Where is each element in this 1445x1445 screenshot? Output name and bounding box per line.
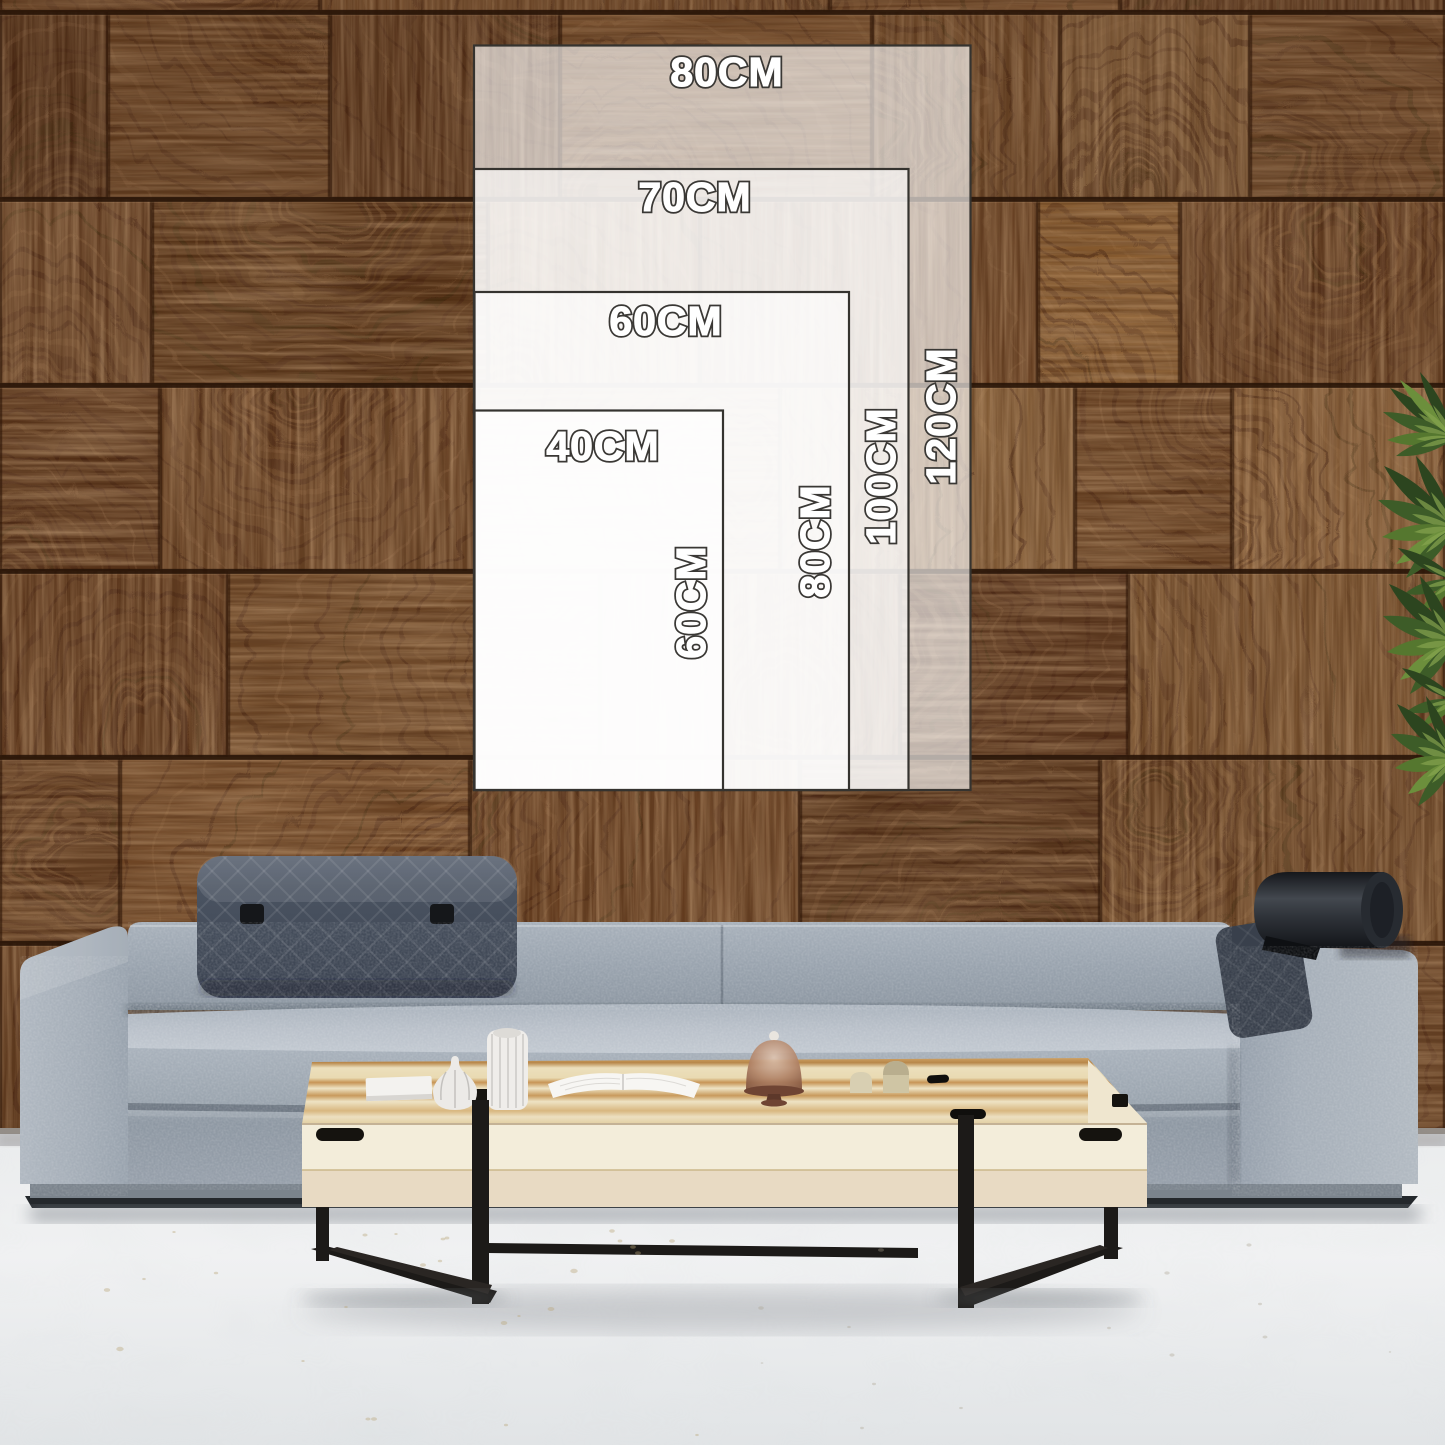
svg-text:100CM: 100CM	[858, 407, 904, 544]
svg-text:80CM: 80CM	[670, 49, 783, 95]
svg-text:120CM: 120CM	[918, 347, 964, 484]
svg-text:60CM: 60CM	[609, 298, 722, 344]
svg-text:60CM: 60CM	[668, 545, 714, 658]
svg-text:40CM: 40CM	[546, 423, 659, 469]
svg-text:70CM: 70CM	[638, 174, 751, 220]
svg-text:80CM: 80CM	[792, 484, 838, 597]
